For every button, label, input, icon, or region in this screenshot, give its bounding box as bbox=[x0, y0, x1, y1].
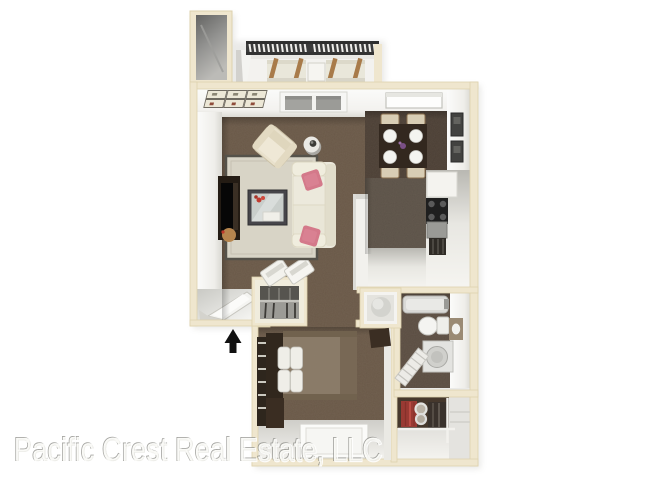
svg-text:Pacific Crest Real Estate, LLC: Pacific Crest Real Estate, LLC bbox=[14, 432, 382, 469]
